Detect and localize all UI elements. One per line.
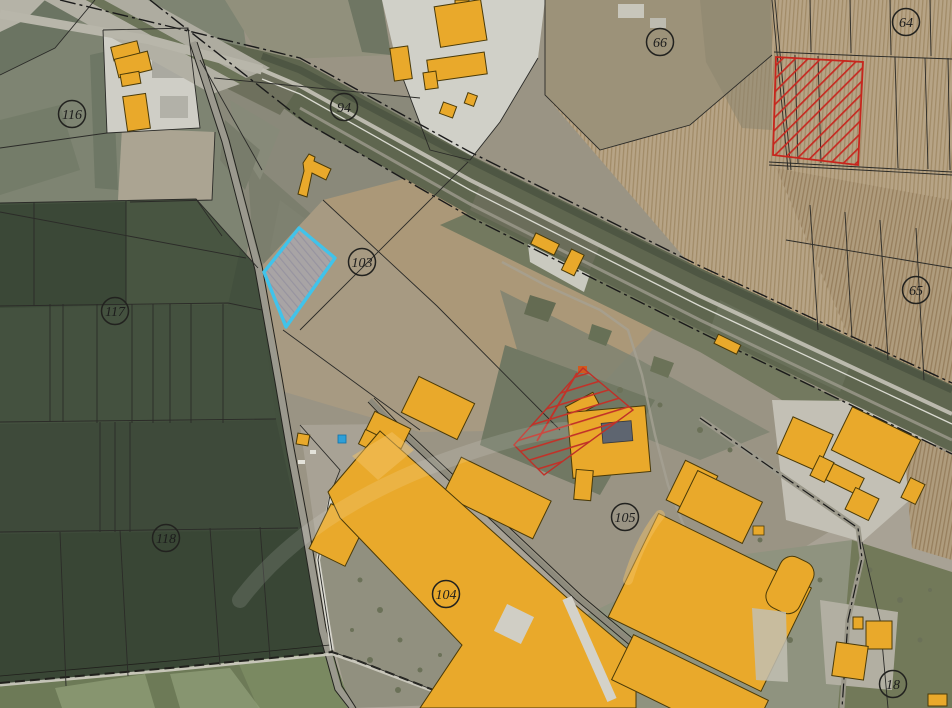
svg-text:18: 18 [886,678,900,693]
svg-text:65: 65 [909,284,923,299]
svg-text:104: 104 [436,588,457,603]
svg-text:66: 66 [653,36,667,51]
svg-text:105: 105 [615,511,636,526]
svg-text:118: 118 [156,532,176,547]
svg-text:94: 94 [337,101,351,116]
svg-text:64: 64 [899,16,913,31]
svg-text:103: 103 [352,256,373,271]
svg-text:117: 117 [105,305,126,320]
svg-text:116: 116 [62,108,82,123]
